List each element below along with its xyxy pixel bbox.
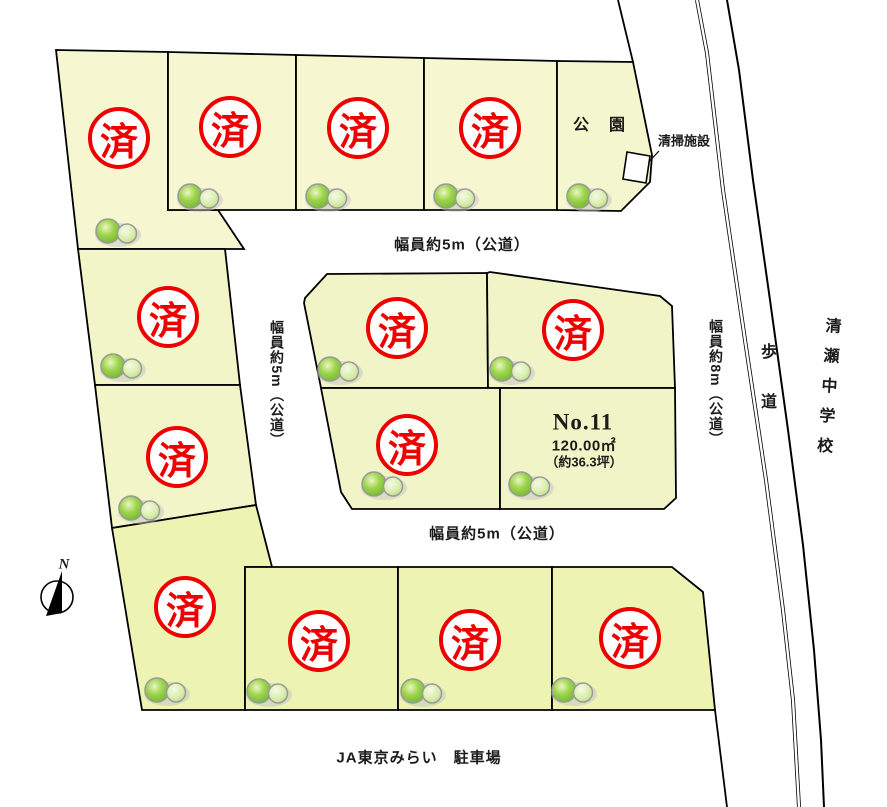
sidewalk-label: 歩道 [758, 343, 774, 443]
featured-lot-number: No.11 [553, 411, 614, 434]
sold-stamp-text: 済 [554, 303, 592, 358]
parking-label: JA東京みらい 駐車場 [336, 751, 501, 766]
sold-stamp-text: 済 [300, 614, 338, 669]
sold-stamp: 済 [366, 297, 428, 359]
sold-stamp-text: 済 [611, 611, 649, 666]
sold-stamp: 済 [439, 609, 501, 671]
west-road-label: 幅員約5m（公道） [270, 320, 284, 447]
featured-lot-area-m2: 120.00㎡ [552, 439, 616, 454]
sold-stamp: 済 [146, 426, 208, 488]
north-road-label: 幅員約5m（公道） [394, 238, 530, 253]
park-label: 公 園 [573, 118, 627, 134]
road-edge-east [727, 0, 824, 807]
sold-stamp-text: 済 [339, 101, 377, 156]
road-edge-line [618, 0, 633, 62]
sold-stamp: 済 [88, 107, 150, 169]
featured-lot-area-tsubo: （約36.3坪） [545, 456, 622, 469]
sold-stamp: 済 [288, 610, 350, 672]
sold-stamp-text: 済 [451, 613, 489, 668]
sold-stamp: 済 [459, 97, 521, 159]
road-edge-line [715, 710, 727, 807]
south-road-label: 幅員約5m（公道） [429, 527, 565, 542]
compass-rose [41, 571, 73, 616]
sold-stamp: 済 [542, 299, 604, 361]
sold-stamp-text: 済 [471, 101, 509, 156]
east-road-label: 幅員約8m（公道） [709, 319, 723, 446]
sold-stamp: 済 [199, 96, 261, 158]
sold-stamp: 済 [376, 414, 438, 476]
sold-stamp: 済 [599, 607, 661, 669]
cleaning-facility-label: 清掃施設 [658, 135, 710, 148]
sold-stamp-text: 済 [149, 290, 187, 345]
sold-stamp-text: 済 [211, 100, 249, 155]
sold-stamp: 済 [137, 286, 199, 348]
sold-stamp-text: 済 [158, 430, 196, 485]
cleaning-facility-box [623, 152, 650, 183]
compass-n-label: N [59, 558, 70, 573]
sold-stamp: 済 [154, 576, 216, 638]
subdivision-map: 幅員約5m（公道） 幅員約5m（公道） 幅員約5m（公道） 幅員約8m（公道） … [0, 0, 887, 807]
sold-stamp-text: 済 [166, 580, 204, 635]
sold-stamp-text: 済 [100, 111, 138, 166]
sold-stamp: 済 [327, 97, 389, 159]
sold-stamp-text: 済 [378, 301, 416, 356]
sold-stamp-text: 済 [388, 418, 426, 473]
